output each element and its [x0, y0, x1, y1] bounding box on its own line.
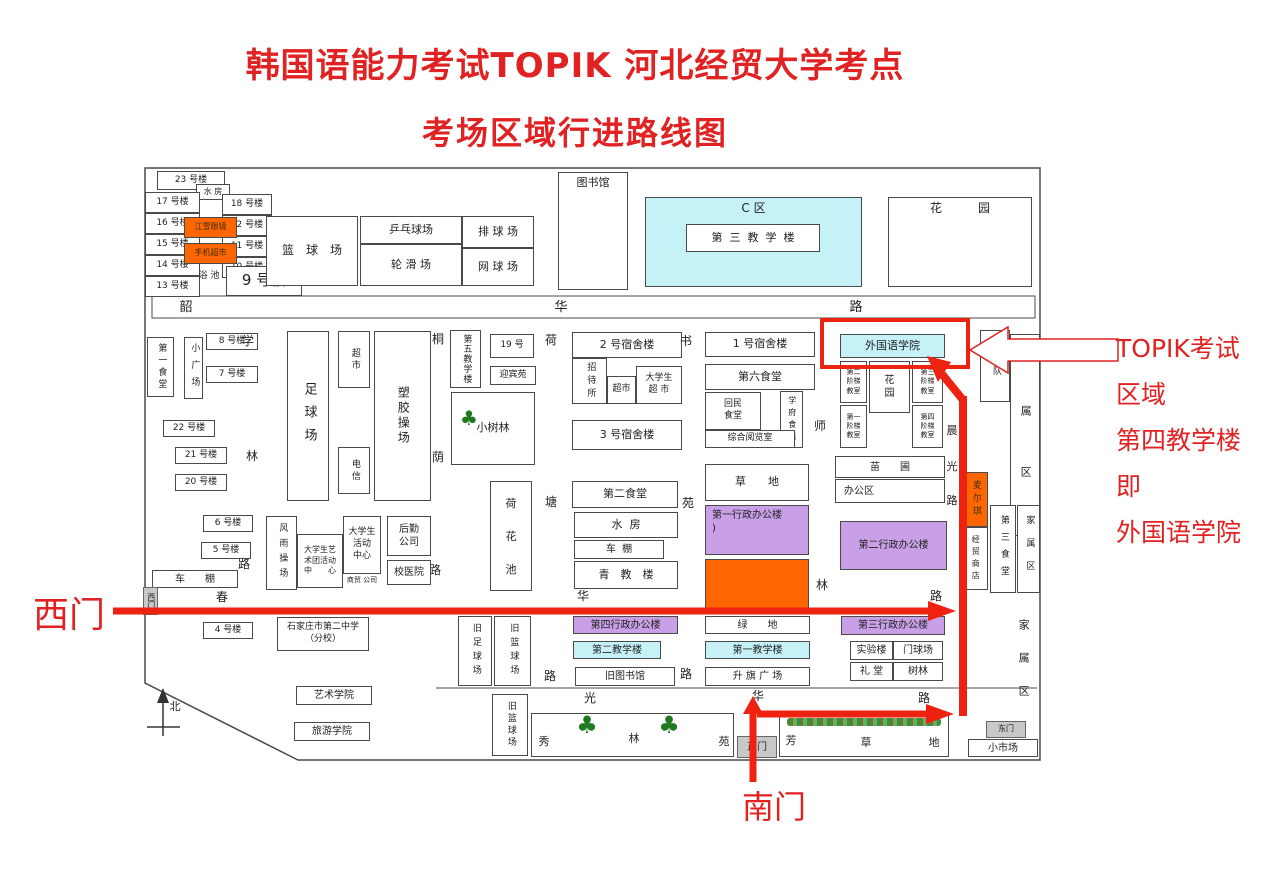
trade-company: 商贸 公司 [341, 574, 383, 587]
south-gate-label: 南门 [742, 782, 806, 828]
yingbinyuan: 迎宾苑 [490, 366, 536, 385]
bath-house: 浴 池 [188, 269, 230, 284]
telecom: 电信 [338, 447, 370, 494]
tree-icon: ♣ [575, 712, 599, 740]
note-line: 第四教学楼 [1116, 418, 1272, 464]
xiulinyuan-2: 林 [626, 731, 642, 747]
admin-bldg-4: 第四行政办公楼 [573, 616, 678, 634]
teach-bldg-5: 第五教学楼 [450, 330, 481, 388]
road-shilin-1: 师 [812, 419, 828, 435]
fengyu-ground: 风雨操场 [266, 516, 297, 590]
no2-middle-school: 石家庄市第二中学 （分校） [277, 617, 369, 651]
xiulinyuan-1: 秀 [536, 734, 552, 750]
green-land: 绿 地 [705, 616, 810, 634]
road-chenguang-3: 路 [945, 494, 959, 508]
bldg-19: 19 号 [490, 334, 534, 358]
bldg-4: 4 号楼 [203, 622, 253, 639]
fangcaodi-3: 地 [926, 735, 942, 751]
foreign-language-college: 外国语学院 [840, 334, 945, 358]
art-college: 艺术学院 [296, 686, 372, 705]
road-shilin-2: 林 [814, 578, 830, 594]
road-hetang-2: 塘 [543, 495, 559, 511]
bldg-6: 6 号楼 [203, 515, 253, 532]
road-xuelin-1: 学 [240, 334, 256, 350]
pingpong-court: 乒乓球场 [360, 216, 462, 244]
admin-bldg-1: 第一行政办公楼 ) [705, 505, 809, 555]
canteen-1: 第一食堂 [147, 337, 174, 397]
lotus-pond: 荷 花 池 [490, 481, 532, 591]
old-football-field: 旧足球场 [458, 616, 492, 686]
small-square: 小广场 [184, 337, 203, 399]
road-hetang-1: 荷 [543, 333, 559, 349]
fangcaodi-1: 芳 [783, 733, 799, 749]
clinic: 校医院 [387, 560, 431, 585]
logistics-company: 后勤 公司 [387, 516, 431, 556]
campus-map-page: 23 号楼水 房17 号楼16 号楼15 号楼14 号楼13 号楼18 号楼12… [0, 0, 1273, 877]
bldg-21: 21 号楼 [175, 447, 227, 464]
rubber-track: 塑胶操场 [374, 331, 431, 501]
road-shaohua-3: 路 [846, 299, 866, 317]
note-line: TOPIK考试 [1116, 326, 1272, 372]
flag-square: 升 旗 广 场 [705, 667, 810, 686]
auditorium: 礼 堂 [850, 662, 893, 681]
canteen-3: 第三食堂 [990, 505, 1016, 593]
fangcaodi-2: 草 [858, 735, 874, 751]
road-chunhua-1: 春 [214, 590, 230, 606]
motor-pool: 车队 [980, 330, 1010, 402]
teach-bldg-3: 第 三 教 学 楼 [686, 224, 820, 252]
road-chunhua-2: 华 [575, 589, 591, 605]
road-chenguang-1: 晨 [945, 424, 959, 438]
road-shaohua-2: 华 [551, 299, 571, 317]
road-tongyin-1: 桐 [430, 332, 446, 348]
note-line: 外国语学院 [1116, 510, 1272, 556]
lawn: 草 地 [705, 464, 809, 501]
family-area-e: 家属区 [1017, 505, 1040, 593]
canteen-2: 第二食堂 [572, 481, 678, 508]
maierqi-shop: 麦尔琪 [962, 472, 988, 527]
bldg-18: 18 号楼 [222, 194, 272, 215]
road-shaohua-1: 韶 [176, 299, 196, 317]
garden-ne: 花 园 [888, 197, 1032, 287]
teach-bldg-1: 第一教学楼 [705, 641, 810, 659]
lab-bldg: 实验楼 [850, 641, 893, 660]
student-activity-center: 大学生 活动 中心 [343, 516, 381, 574]
main-gate: 正门 [737, 736, 777, 758]
bike-shed-w: 车 棚 [152, 570, 238, 588]
admin-bldg-2: 第二行政办公楼 [840, 521, 947, 570]
shop-phone: 手机超市 [184, 243, 237, 264]
nursery-garden: 苗 圃 [835, 456, 945, 478]
family-area-se: 家属区 [1008, 618, 1038, 718]
bldg-7: 7 号楼 [206, 366, 258, 383]
garden-small: 花 园 [869, 361, 910, 413]
skating-rink: 轮 滑 场 [360, 244, 462, 286]
road-chunhua-3: 路 [928, 589, 944, 605]
bldg-5: 5 号楼 [201, 542, 251, 559]
bike-shed: 车 棚 [574, 540, 664, 559]
hui-canteen: 回民 食堂 [705, 392, 761, 430]
office-area: 办公区 [835, 479, 945, 503]
shop-glasses: 江雪眼镜 [184, 217, 237, 238]
bldg-22: 22 号楼 [163, 420, 215, 437]
xiulinyuan-3: 苑 [716, 734, 732, 750]
road-shuyuan-3: 路 [678, 667, 694, 683]
topik-exam-area-note: TOPIK考试 区域 第四教学楼 即 外国语学院 [1116, 326, 1272, 556]
old-basketball-court-s: 旧篮球场 [492, 694, 528, 756]
qingjiao-bldg: 青 教 楼 [574, 561, 678, 589]
admin-bldg-3: 第三行政办公楼 [841, 616, 945, 635]
student-market: 大学生 超 市 [636, 366, 682, 404]
gateball-court: 门球场 [893, 641, 943, 660]
road-xuelin-3: 路 [236, 557, 252, 573]
tree-icon: ♣ [657, 712, 681, 740]
supermarket-v: 超市 [338, 331, 370, 388]
supermarket-s: 超市 [607, 376, 636, 404]
water-house: 水 房 [574, 512, 678, 538]
tourism-college: 旅游学院 [294, 722, 370, 741]
note-line: 即 [1116, 464, 1272, 510]
basketball-court: 篮 球 场 [266, 216, 358, 286]
step-classroom-3: 第三 阶梯 教室 [912, 361, 943, 403]
dorm-1: 1 号宿舍楼 [705, 332, 815, 357]
hedge [787, 718, 941, 726]
road-guanghua-1: 光 [582, 691, 598, 707]
old-basketball-court: 旧篮球场 [494, 616, 531, 686]
woods: 树林 [893, 662, 943, 681]
west-gate-box: 西门 [143, 587, 158, 615]
library: 图书馆 [558, 172, 628, 290]
tennis-court: 网 球 场 [462, 248, 534, 286]
road-hetang-3: 路 [542, 669, 558, 685]
old-library: 旧图书馆 [575, 667, 675, 686]
note-line: 区域 [1116, 372, 1272, 418]
art-troupe-center: 大学生艺 术团活动 中 心 [297, 534, 343, 588]
step-classroom-1: 第一 阶梯 教室 [840, 405, 867, 448]
tree-icon: ♣ [458, 405, 480, 431]
step-classroom-4: 第四 阶梯 教室 [912, 405, 943, 448]
road-chenguang-2: 光 [945, 460, 959, 474]
bldg-20: 20 号楼 [175, 474, 227, 491]
road-guanghua-3: 路 [916, 691, 932, 707]
volleyball-court: 排 球 场 [462, 216, 534, 248]
teach-bldg-2: 第二教学楼 [573, 641, 661, 659]
bldg-17: 17 号楼 [145, 192, 200, 213]
road-shuyuan-2: 苑 [680, 496, 696, 512]
road-xuelin-2: 林 [244, 449, 260, 465]
jingmao-shop: 经贸商店 [962, 527, 988, 590]
north-label: 北 [168, 700, 182, 714]
east-gate: 东门 [986, 721, 1026, 738]
dorm-2: 2 号宿舍楼 [572, 332, 682, 358]
west-gate-label: 西门 [33, 586, 105, 638]
road-shuyuan-1: 书 [678, 334, 694, 350]
road-guanghua-2: 华 [750, 689, 766, 705]
dorm-3: 3 号宿舍楼 [572, 420, 682, 450]
orange-bldg [705, 559, 809, 613]
canteen-6: 第六食堂 [705, 364, 815, 390]
step-classroom-2: 第二 阶梯 教室 [840, 361, 867, 403]
reading-room: 综合阅览室 [705, 430, 795, 448]
football-field: 足球场 [287, 331, 329, 501]
small-market: 小市场 [968, 739, 1038, 757]
road-tongyin-2: 荫 [430, 450, 446, 466]
guesthouse: 招待所 [572, 358, 607, 404]
map-buildings-layer: 23 号楼水 房17 号楼16 号楼15 号楼14 号楼13 号楼18 号楼12… [0, 0, 1273, 877]
